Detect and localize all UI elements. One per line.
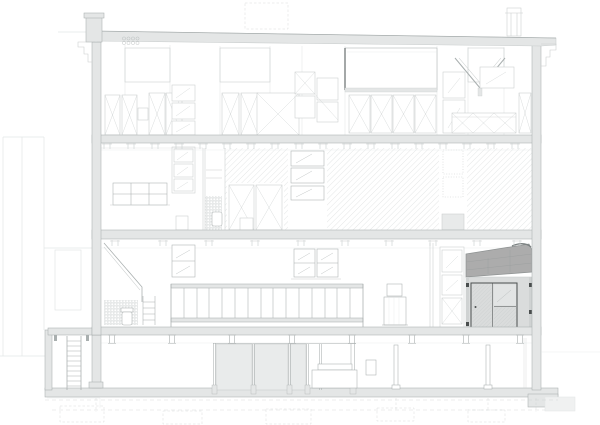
basement-wall xyxy=(45,330,52,390)
cornice-right xyxy=(541,44,556,66)
toilet-room xyxy=(203,148,222,230)
wall-box xyxy=(366,360,376,375)
rooftop-dashed-outline xyxy=(245,3,288,29)
ground-floor xyxy=(45,330,532,394)
stove-icon xyxy=(382,284,408,325)
columns xyxy=(392,345,492,389)
casement-window xyxy=(172,245,195,277)
roof-slab xyxy=(92,31,556,46)
window-column xyxy=(172,147,195,230)
first-floor xyxy=(101,243,532,331)
six-pane-window xyxy=(110,183,170,205)
floor-slab-first xyxy=(48,327,541,344)
left-wall xyxy=(92,42,101,335)
attic-storage-cabinets xyxy=(105,67,531,135)
pier xyxy=(92,335,101,388)
chimney-right xyxy=(505,8,523,36)
centre-window-column xyxy=(291,151,324,200)
second-floor xyxy=(101,145,532,230)
porch-slab xyxy=(48,328,92,335)
floor-slab-second xyxy=(92,230,541,246)
right-wall xyxy=(532,42,541,390)
balustrade xyxy=(171,284,363,327)
counter xyxy=(312,364,357,388)
casement-window-pair xyxy=(291,249,341,279)
annex-mono-pitch-roof xyxy=(466,244,532,277)
chimney-left xyxy=(84,13,104,42)
attic-skylight xyxy=(345,48,437,92)
tiled-wall xyxy=(104,300,138,325)
attic-floor xyxy=(105,45,531,135)
tall-cabinet xyxy=(440,247,464,330)
step-stool xyxy=(143,296,155,325)
building-section-drawing xyxy=(0,0,600,425)
toilet-icon xyxy=(212,212,222,226)
annex xyxy=(466,244,532,331)
ladder-icon xyxy=(67,336,81,390)
toilet-icon xyxy=(121,308,133,325)
section-drawing-sheet xyxy=(0,0,600,425)
adjacent-building-outline xyxy=(0,32,92,356)
partition xyxy=(430,243,433,330)
stair-slope xyxy=(104,243,142,302)
cornice-left xyxy=(78,42,92,62)
